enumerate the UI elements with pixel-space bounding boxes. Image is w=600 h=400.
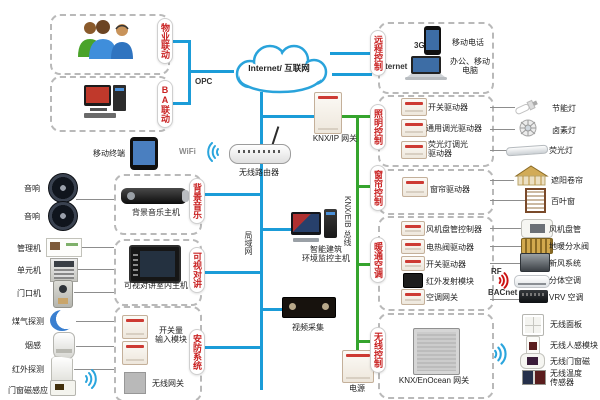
blinds-icon	[525, 188, 546, 213]
line-cloud-router	[260, 92, 263, 144]
curtain-actuator-icon	[402, 177, 428, 197]
split-ac-label: 分体空调	[549, 276, 593, 285]
ba-tab: BA联动	[157, 80, 173, 128]
video-capture-label: 视频采集	[282, 323, 334, 332]
split-ac-icon	[514, 275, 550, 288]
smoke-sensor-label: 烟感	[18, 341, 48, 350]
fluorescent-dimmer-label: 荧光灯调光 驱动器	[428, 140, 486, 158]
wireless-temp-sensor-label: 无线温度 传感器	[550, 369, 594, 387]
awning-icon	[514, 164, 549, 187]
music-tab: 背景音乐	[189, 178, 205, 224]
laptop-label: 办公、移动 电脑	[448, 57, 492, 75]
fluorescent-tube-label: 荧光灯	[549, 146, 583, 155]
line-speakers	[76, 199, 114, 200]
host-label: 智能建筑 环境监控主机	[272, 245, 380, 263]
ir-emitter-label: 红外发射模块	[426, 277, 486, 286]
lighting-tab: 照明控制	[370, 104, 386, 150]
wireless-door-magnet-icon	[520, 353, 545, 369]
wireless-panel-icon	[522, 314, 544, 336]
people-icon	[76, 19, 134, 59]
laptop-icon	[403, 55, 449, 81]
enocean-gateway-label: KNX/EnOcean 网关	[384, 376, 484, 385]
vrv-label: VRV 空调	[549, 293, 597, 302]
line-3g	[330, 52, 372, 55]
fluorescent-dimmer-icon	[401, 141, 427, 159]
mobile-phone-icon	[424, 26, 441, 55]
line-doorphone	[74, 292, 114, 293]
manifold-label: 地暖分水阀	[549, 242, 599, 251]
smart-home-knx-diagram: 物业联动 BA联动 Internet/ 互联网 OPC 3G Internet …	[0, 0, 600, 400]
line-to-knxip	[262, 115, 314, 118]
vrv-icon	[519, 290, 548, 303]
router-label: 无线路由器	[219, 168, 299, 177]
bacnet-label: BACnet	[488, 288, 517, 297]
line-lamp3	[490, 150, 507, 151]
tablet-label: 移动终端	[90, 149, 128, 158]
wireless-panel-label: 无线面板	[550, 320, 594, 329]
input-module-icon-1	[122, 315, 148, 339]
fluorescent-dimmer-line2: 驱动器	[428, 149, 452, 158]
dimmer-actuator-label: 通用调光驱动器	[426, 124, 488, 133]
hvac-switch-actuator-icon	[401, 256, 425, 271]
mobile-phone-label: 移动电话	[448, 38, 488, 47]
ir-detector-label: 红外探测	[8, 365, 48, 374]
ba-computer-icon	[82, 83, 130, 123]
knx-bus-label: KNX/EIB 总线	[342, 196, 353, 246]
fancoil-label: 风机盘管	[549, 225, 593, 234]
wireless-router-icon	[229, 144, 291, 164]
dimmer-actuator-icon	[401, 119, 427, 137]
speaker-icon-1	[48, 173, 78, 203]
curtain-actuator-label: 窗帘驱动器	[430, 185, 488, 194]
wireless-temp-sensor-icon	[522, 370, 546, 385]
laptop-label-line1: 办公、移动	[450, 57, 490, 66]
intercom-screen	[140, 251, 175, 277]
blinds-label: 百叶窗	[551, 197, 591, 206]
fancoil-controller-icon	[401, 221, 425, 236]
line-freshair	[490, 263, 520, 264]
ac-gateway-label: 空调网关	[426, 293, 474, 302]
host-label-line2: 环境监控主机	[302, 254, 350, 263]
property-tab: 物业联动	[157, 18, 173, 64]
halogen-lamp-icon	[515, 119, 541, 137]
enocean-gateway-icon	[413, 328, 460, 375]
line-manifold	[490, 246, 521, 247]
knx-ip-gateway-icon	[314, 92, 342, 134]
line-lan-trunk	[260, 163, 263, 390]
line-mgmt	[80, 247, 114, 248]
host-keyboard-icon	[293, 238, 319, 242]
host-label-line1: 智能建筑	[310, 245, 342, 254]
lan-label: 局域网	[243, 231, 254, 255]
line-internet	[332, 73, 372, 76]
management-unit-label: 管理机	[14, 244, 44, 253]
wireless-signal-icon	[493, 343, 510, 365]
wireless-door-magnet-label: 无线门窗磁	[550, 357, 600, 366]
line-knx-bus	[356, 115, 359, 354]
door-station-icon	[53, 280, 73, 308]
music-host-icon	[121, 188, 187, 204]
opc-label: OPC	[195, 77, 212, 86]
line-to-security	[197, 346, 261, 349]
input-module-label: 开关量 输入模块	[150, 326, 192, 344]
management-unit-icon	[46, 238, 82, 257]
freshair-label: 新风系统	[549, 259, 593, 268]
line-smoke	[76, 346, 114, 347]
halogen-lamp-label: 卤素灯	[552, 126, 586, 135]
host-tower-icon	[324, 209, 337, 238]
router-wifi-icon	[204, 142, 220, 162]
speaker-icon-2	[48, 201, 78, 231]
gas-detector-icon	[50, 310, 74, 331]
valve-actuator-icon	[401, 239, 425, 254]
intercom-buttons	[133, 252, 138, 276]
wireless-temp-line2: 传感器	[550, 378, 574, 387]
door-station-label: 门口机	[14, 289, 44, 298]
3g-label: 3G	[414, 41, 425, 50]
wifi-label: WiFi	[179, 147, 196, 156]
curtain-tab: 窗帘控制	[370, 165, 386, 211]
power-supply-label: 电源	[341, 384, 373, 393]
line-gas	[76, 321, 114, 322]
line-vrv	[490, 299, 519, 300]
host-monitor-icon	[291, 212, 321, 235]
input-module-label-line2: 输入模块	[155, 335, 187, 344]
wireless-tab: 无线控制	[370, 327, 386, 373]
speaker-label-2: 音响	[18, 212, 46, 221]
input-module-label-line1: 开关量	[159, 326, 183, 335]
unit-machine-icon	[50, 258, 78, 282]
security-wifi-icon	[84, 369, 100, 389]
security-tab: 安防系统	[189, 329, 205, 375]
cfl-lamp-label: 节能灯	[552, 104, 586, 113]
freshair-icon	[520, 253, 550, 272]
intercom-host-label: 可视对讲室内主机	[116, 281, 196, 290]
music-host-label: 背景音乐主机	[116, 208, 196, 217]
wireless-gateway-label: 无线网关	[146, 379, 190, 388]
door-magnet-icon	[50, 380, 76, 396]
intercom-host-icon	[129, 245, 181, 283]
door-magnet-label: 门窗磁感应	[4, 386, 52, 395]
ac-gateway-icon	[401, 289, 425, 305]
line-to-intercom	[197, 271, 261, 274]
line-to-music	[197, 193, 261, 196]
unit-machine-label: 单元机	[14, 266, 44, 275]
fluorescent-tube-icon	[506, 145, 549, 157]
switch-actuator-label: 开关驱动器	[428, 103, 486, 112]
line-unit	[78, 269, 114, 270]
cloud-label: Internet/ 互联网	[228, 62, 330, 74]
line-lamp2	[490, 129, 515, 130]
remote-tab: 远程控制	[370, 30, 386, 76]
hvac-switch-actuator-label: 开关驱动器	[426, 260, 486, 269]
speaker-label-1: 音响	[18, 184, 46, 193]
rf-signal-icon	[498, 272, 511, 289]
fluorescent-dimmer-line1: 荧光灯调光	[428, 140, 468, 149]
line-lamp1	[490, 107, 515, 108]
switch-actuator-icon	[401, 98, 427, 116]
wireless-temp-line1: 无线温度	[550, 369, 582, 378]
hvac-tab: 暖通空调	[370, 237, 386, 283]
wireless-gateway-icon	[124, 372, 146, 394]
tablet-icon	[130, 137, 158, 170]
line-blinds	[490, 200, 525, 201]
smoke-sensor-icon	[53, 332, 75, 360]
valve-actuator-label: 电热阀驱动器	[426, 243, 486, 252]
wireless-pir-label: 无线人感模块	[550, 341, 600, 350]
host-screen	[293, 214, 319, 232]
intercom-tab: 可视对讲	[189, 247, 205, 293]
ir-emitter-icon	[403, 273, 423, 288]
fancoil-controller-label: 风机盘管控制器	[426, 225, 490, 234]
laptop-label-line2: 电脑	[462, 66, 478, 75]
gas-detector-label: 煤气探测	[8, 317, 48, 326]
input-module-icon-2	[122, 341, 148, 365]
awning-label: 遮阳卷帘	[551, 176, 595, 185]
line-fancoil	[490, 228, 521, 229]
line-awning	[490, 180, 514, 181]
video-capture-icon	[282, 297, 336, 318]
cfl-lamp-icon	[514, 97, 540, 118]
